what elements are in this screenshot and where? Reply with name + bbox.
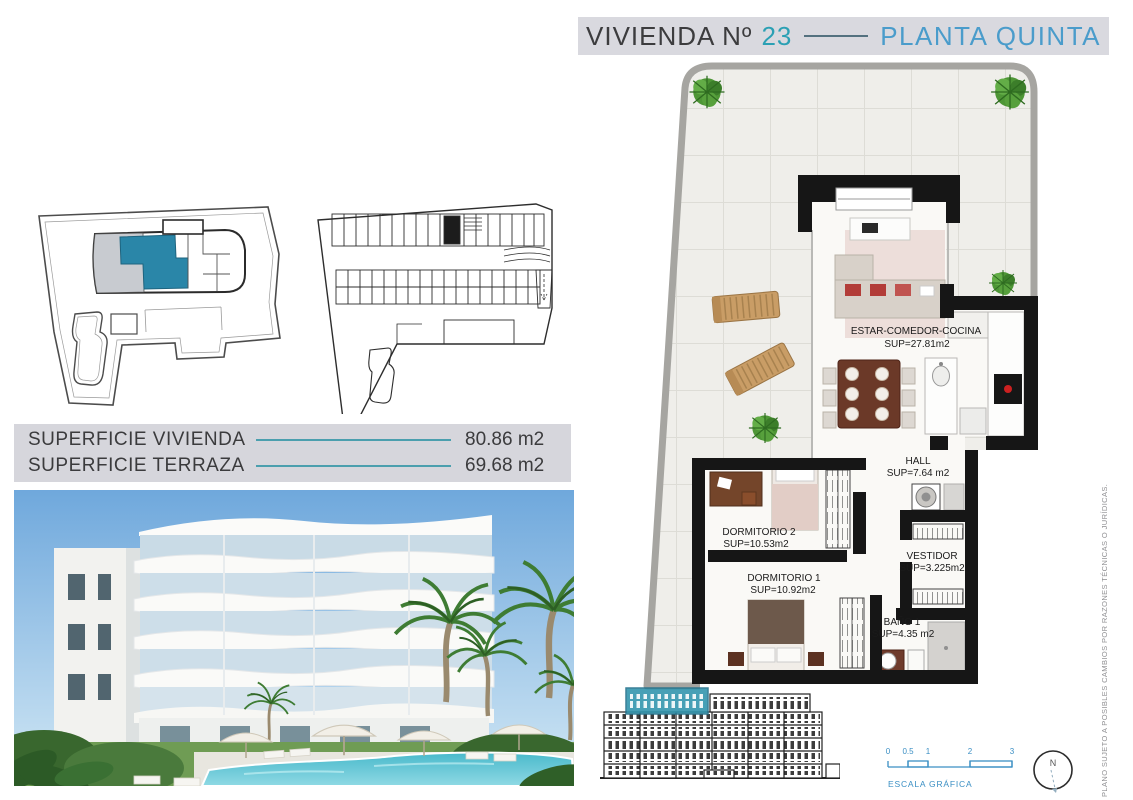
title-unit-number: 23 — [761, 21, 792, 52]
compass: N — [1030, 744, 1078, 796]
compass-north-label: N — [1050, 758, 1057, 768]
room-name-dorm1: DORMITORIO 1 — [747, 573, 821, 584]
title-band: VIVIENDA Nº 23 PLANTA QUINTA — [578, 17, 1109, 55]
garage-ramp — [504, 247, 550, 262]
tv — [862, 223, 878, 233]
title-divider-line — [804, 35, 868, 37]
title-planta-label: PLANTA QUINTA — [880, 21, 1101, 52]
surface-value: 69.68 m2 — [465, 455, 557, 477]
dormitorio1-furniture — [728, 598, 864, 672]
disclaimer-text: PLANO SUJETO A POSIBLES CAMBIOS POR RAZO… — [1100, 463, 1118, 797]
scale-tick-2: 2 — [968, 747, 973, 756]
siteplan-pool — [73, 307, 223, 385]
surface-row-vivienda: SUPERFICIE VIVIENDA 80.86 m2 — [28, 428, 557, 452]
siteplan-roof-box — [163, 220, 203, 234]
hall-fixtures — [912, 484, 964, 510]
room-area-dorm2: SUP=10.53m2 — [723, 539, 789, 550]
garage-parking-rows — [332, 214, 552, 403]
floorplan-drawing: ESTAR-COMEDOR-COCINA SUP=27.81m2 HALL SU… — [630, 62, 1108, 694]
room-name-bano: BAÑO 1 — [884, 615, 921, 628]
room-area-vestidor: SUP=3.225m2 — [899, 563, 965, 574]
title-vivienda-label: VIVIENDA Nº — [586, 21, 752, 52]
room-area-dorm1: SUP=10.92m2 — [750, 585, 816, 596]
room-name-hall: HALL — [905, 456, 930, 467]
scale-bar-graphic — [888, 761, 1012, 767]
elevation-highlighted-unit — [626, 688, 708, 714]
bed-double — [748, 600, 804, 672]
scale-bar: 0 0.5 1 2 3 ESCALA GRÁFICA — [880, 742, 1030, 794]
building-photo — [14, 490, 574, 786]
scale-tick-3: 3 — [1010, 747, 1015, 756]
stove-burner — [1004, 385, 1012, 393]
bed-single — [772, 464, 818, 530]
garage-boundary — [318, 204, 552, 414]
surface-value: 80.86 m2 — [465, 429, 557, 451]
scale-tick-labels: 0 0.5 1 2 3 — [886, 747, 1015, 756]
room-area-estar: SUP=27.81m2 — [884, 339, 950, 350]
siteplan-location-drawing — [25, 192, 297, 414]
room-name-dorm2: DORMITORIO 2 — [722, 527, 796, 538]
surface-leader-line — [256, 439, 451, 441]
living-window — [836, 188, 912, 210]
surface-row-terraza: SUPERFICIE TERRAZA 69.68 m2 — [28, 454, 557, 478]
toilet — [908, 650, 924, 672]
nightstand — [808, 652, 824, 666]
brochure-page: VIVIENDA Nº 23 PLANTA QUINTA — [0, 0, 1133, 800]
garage-stair-core — [444, 216, 460, 244]
siteplan-garage-drawing — [312, 192, 564, 414]
surface-table: SUPERFICIE VIVIENDA 80.86 m2 SUPERFICIE … — [14, 424, 571, 482]
scale-tick-1: 1 — [926, 747, 931, 756]
basin — [880, 653, 896, 669]
room-area-hall: SUP=7.64 m2 — [887, 468, 950, 479]
surface-leader-line — [256, 465, 451, 467]
room-name-vestidor: VESTIDOR — [906, 551, 957, 562]
elevation-drawing — [600, 680, 840, 792]
scale-tick-0: 0 — [886, 747, 891, 756]
surface-label: SUPERFICIE TERRAZA — [28, 455, 256, 477]
room-name-estar: ESTAR-COMEDOR-COCINA — [851, 326, 982, 337]
surface-label: SUPERFICIE VIVIENDA — [28, 429, 256, 451]
scale-bar-label: ESCALA GRÁFICA — [888, 779, 972, 789]
compass-circle — [1034, 751, 1072, 789]
room-area-bano: SUP=4.35 m2 — [872, 629, 935, 640]
tv-sideboard — [850, 218, 910, 240]
photo-building — [54, 515, 494, 756]
sink — [933, 366, 950, 386]
siteplan-building — [93, 220, 245, 293]
desk-chair — [742, 492, 756, 505]
scale-tick-05: 0.5 — [902, 747, 914, 756]
nightstand — [728, 652, 744, 666]
dishwasher — [960, 408, 986, 434]
